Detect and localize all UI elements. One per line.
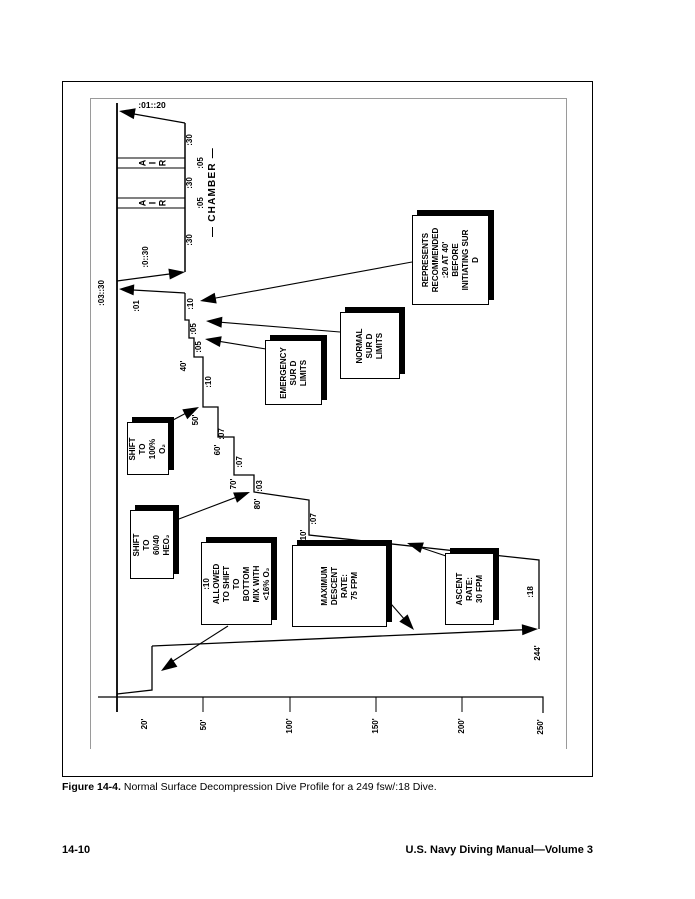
label-air2-r: R: [159, 200, 168, 207]
label-40ft-ext2: :05: [195, 341, 203, 353]
note-box-bottom-mix: :10 ALLOWED TO SHIFT TO BOTTOM MIX WITH …: [201, 542, 272, 625]
axis-label-50ft: 50': [200, 720, 208, 731]
label-air-break-1: :05: [197, 157, 205, 169]
label-70ft-depth: 70': [230, 479, 238, 490]
label-80ft-time: :03: [256, 480, 264, 492]
page-number: 14-10: [62, 845, 90, 856]
label-air1-a: A: [139, 160, 148, 167]
chamber-descent-arrowhead-icon: [168, 269, 185, 280]
arrowhead-ascent-rate-icon: [407, 543, 424, 554]
figure-caption: Figure 14-4. Normal Surface Decompressio…: [62, 781, 582, 795]
leader-shift-heo2: [171, 496, 240, 522]
label-air2-i: I: [149, 202, 158, 205]
manual-page: :01::20 :30 :05 :30 :05 :30 A I R A I R …: [0, 0, 695, 899]
final-ascent-arrowhead-icon: [119, 108, 136, 119]
label-80ft-depth: 80': [254, 499, 262, 510]
descent-to-20ft: [117, 646, 152, 694]
note-box-represents-recommended: REPRESENTS RECOMMENDED :20 AT 40' BEFORE…: [412, 215, 489, 305]
manual-title: U.S. Navy Diving Manual—Volume 3: [406, 845, 593, 856]
label-o2-period-2: :30: [186, 177, 194, 189]
label-60ft-time: :07: [218, 428, 226, 440]
label-ascent-to-surface-time: :01: [133, 300, 141, 312]
label-50ft-time: :10: [205, 376, 213, 388]
surface-arrowhead-icon: [119, 284, 134, 295]
axis-label-250ft: 250': [537, 719, 545, 734]
air-break-rungs: [117, 158, 185, 208]
label-70ft-time: :07: [236, 456, 244, 468]
label-air-break-2: :05: [197, 197, 205, 209]
note-text-shift-100-o2: SHIFT TO 100% O₂: [128, 437, 168, 460]
label-110ft-time: :07: [310, 513, 318, 525]
arrowhead-normal-icon: [206, 317, 222, 328]
note-text-max-descent-rate: MAXIMUM DESCENT RATE: 75 FPM: [320, 563, 360, 610]
descent-arrowhead-icon: [522, 624, 538, 635]
note-text-normal-surd-limits: NORMAL SUR D LIMITS: [355, 328, 385, 363]
label-air1-i: I: [149, 162, 158, 165]
arrowhead-represents-icon: [200, 293, 217, 304]
label-o2-period-3: :30: [186, 234, 194, 246]
arrowhead-emergency-icon: [205, 336, 222, 347]
note-text-shift-60-40-heo2: SHIFT TO 60/40 HEO₂: [132, 533, 172, 556]
label-40ft-ext1: :05: [190, 323, 198, 335]
note-box-max-descent-rate: MAXIMUM DESCENT RATE: 75 FPM: [292, 545, 387, 627]
label-50ft-depth: 50': [192, 415, 200, 426]
label-40ft-depth: 40': [180, 361, 188, 372]
chamber-descent-line: [117, 273, 177, 281]
label-40ft-time: :10: [187, 298, 195, 310]
axis-label-150ft: 150': [372, 718, 380, 733]
note-box-ascent-rate: ASCENT RATE: 30 FPM: [445, 553, 494, 625]
dive-profile-diagram: [0, 0, 695, 899]
label-bottom-time: :18: [527, 586, 535, 598]
note-text-represents-recommended: REPRESENTS RECOMMENDED :20 AT 40' BEFORE…: [421, 228, 481, 292]
axis-ticks: [203, 697, 462, 712]
label-final-ascent-time: :01::20: [138, 101, 165, 110]
ascent-to-surface-line: [133, 290, 185, 293]
label-chamber-title: — CHAMBER —: [208, 147, 218, 237]
label-chamber-descent-time: :0::30: [142, 246, 150, 267]
figure-caption-text: Normal Surface Decompression Dive Profil…: [124, 781, 437, 793]
final-ascent-line: [134, 114, 185, 123]
note-box-shift-60-40-heo2: SHIFT TO 60/40 HEO₂: [130, 510, 174, 579]
axis-label-20ft: 20': [141, 719, 149, 730]
leader-bottom-mix: [166, 626, 228, 666]
label-60ft-depth: 60': [214, 445, 222, 456]
note-box-shift-100-o2: SHIFT TO 100% O₂: [127, 422, 169, 475]
note-box-normal-surd-limits: NORMAL SUR D LIMITS: [340, 312, 400, 379]
depth-axis: [98, 697, 543, 713]
label-o2-period-1: :30: [186, 134, 194, 146]
arrowhead-shift-heo2-icon: [233, 492, 250, 503]
leader-normal-limits: [211, 321, 340, 332]
axis-label-200ft: 200': [458, 718, 466, 733]
label-surface-interval: :03::30: [98, 280, 106, 306]
axis-label-100ft: 100': [286, 718, 294, 733]
note-text-emergency-surd-limits: EMERGENCY SUR D LIMITS: [279, 347, 309, 399]
leader-represents: [205, 262, 412, 300]
figure-caption-label: Figure 14-4.: [62, 781, 121, 793]
note-text-ascent-rate: ASCENT RATE: 30 FPM: [455, 573, 485, 606]
note-text-bottom-mix: :10 ALLOWED TO SHIFT TO BOTTOM MIX WITH …: [202, 563, 272, 603]
label-bottom-depth: 244': [534, 645, 542, 660]
label-110ft-depth: 110': [300, 530, 308, 545]
note-box-emergency-surd-limits: EMERGENCY SUR D LIMITS: [265, 340, 322, 405]
label-air1-r: R: [159, 160, 168, 167]
label-air2-a: A: [139, 200, 148, 207]
